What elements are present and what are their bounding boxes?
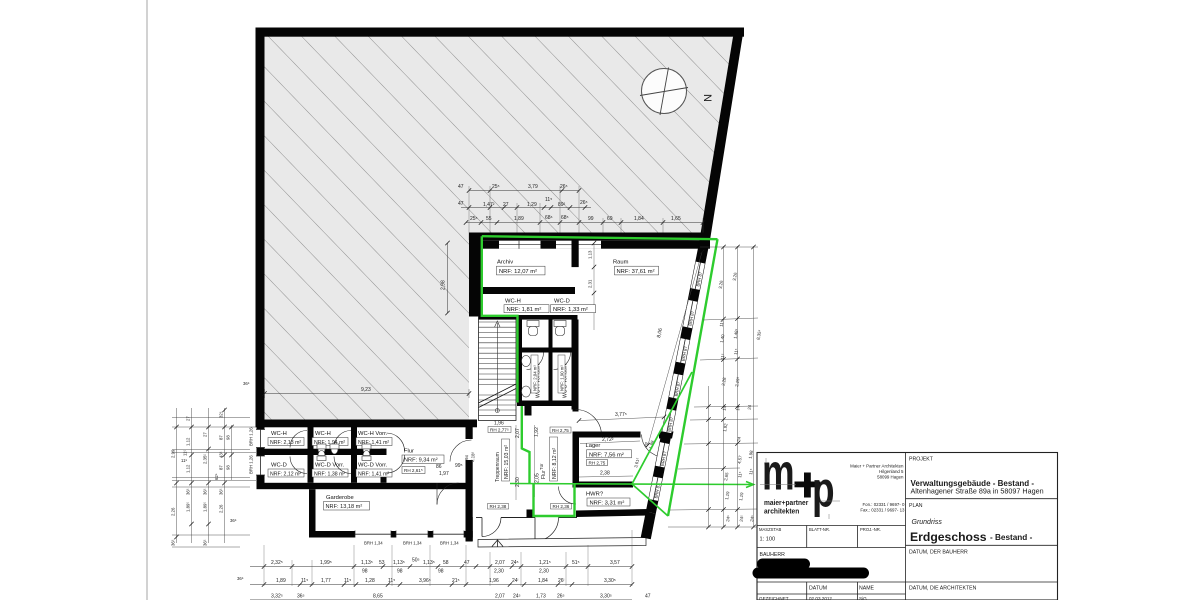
svg-text:36⁵: 36⁵ [203,488,208,495]
svg-text:m: m [762,445,795,501]
svg-text:26ⁱ: 26ⁱ [558,577,565,584]
svg-text:Altenhagener Straße 89a in 580: Altenhagener Straße 89a in 58097 Hagen [911,487,1044,496]
svg-text:BLATT-NR.: BLATT-NR. [809,527,830,532]
svg-text:PROJEKT: PROJEKT [909,457,934,463]
svg-text:Garderobe: Garderobe [326,495,354,501]
svg-text:11⁵: 11⁵ [737,471,743,478]
svg-text:2,65: 2,65 [723,471,729,481]
svg-text:47: 47 [645,594,651,600]
svg-text:36⁵: 36⁵ [219,488,224,495]
svg-text:1,40: 1,40 [719,333,725,343]
svg-text:Treppenraum: Treppenraum [495,452,501,482]
svg-text:24⁵: 24⁵ [749,515,755,523]
svg-text:DATUM, DER BAUHERR: DATUM, DER BAUHERR [909,550,968,556]
svg-text:25⁵: 25⁵ [492,184,500,190]
svg-text:98: 98 [226,435,231,440]
svg-text:1,13⁵: 1,13⁵ [361,560,373,566]
svg-text:HWR?: HWR? [586,492,604,498]
svg-text:2,28: 2,28 [721,376,727,386]
svg-text:98: 98 [226,465,231,470]
svg-text:68⁶: 68⁶ [545,215,553,221]
svg-text:47: 47 [464,560,470,566]
svg-text:36⁵: 36⁵ [230,518,237,523]
svg-text:WC-D: WC-D [554,299,570,305]
svg-text:36⁵: 36⁵ [243,381,250,386]
svg-text:1,47²: 1,47² [483,202,495,208]
svg-text:NRF: 13,18 m²: NRF: 13,18 m² [326,504,363,510]
svg-text:11⁵: 11⁵ [301,578,308,584]
svg-text:02.03.2012: 02.03.2012 [809,596,832,600]
svg-text:24⁵: 24⁵ [511,560,519,566]
svg-text:99: 99 [588,216,594,222]
svg-text:3,79: 3,79 [528,184,538,190]
svg-text:Grundriss: Grundriss [912,519,943,526]
svg-text:1,13⁵: 1,13⁵ [393,560,405,566]
svg-text:1,84: 1,84 [634,216,644,222]
svg-text:8,65: 8,65 [373,594,383,600]
svg-text:36⁵: 36⁵ [186,488,191,495]
svg-text:BRH 1,26: BRH 1,26 [249,427,254,446]
svg-text:RH 2,75: RH 2,75 [552,428,569,433]
svg-text:3,30⁵: 3,30⁵ [600,594,612,600]
svg-text:9,23: 9,23 [361,387,371,393]
svg-text:98: 98 [438,569,444,575]
svg-text:NAME: NAME [859,586,875,592]
svg-text:RH 2,61⁵: RH 2,61⁵ [404,468,423,473]
svg-text:36⁵: 36⁵ [171,539,176,546]
svg-text:87: 87 [219,435,224,440]
svg-text:1,28: 1,28 [365,578,375,584]
svg-text:2,72²: 2,72² [602,437,614,443]
svg-text:55: 55 [486,216,492,222]
svg-text:Fax.: 02331 / 9697- 13: Fax.: 02331 / 9697- 13 [860,508,905,513]
svg-text:2,35⁵: 2,35⁵ [203,454,208,464]
svg-text:GEZEICHNET: GEZEICHNET [759,596,789,600]
svg-text:1,73: 1,73 [536,594,546,600]
svg-text:1,97: 1,97 [439,471,449,477]
svg-text:PROJ.-NR.: PROJ.-NR. [860,527,881,532]
svg-text:1,96: 1,96 [494,421,504,427]
svg-text:24⁵: 24⁵ [513,594,521,600]
svg-text:26⁵: 26⁵ [580,200,588,206]
svg-text:1,92: 1,92 [722,422,728,432]
svg-text:21⁵: 21⁵ [452,578,460,584]
svg-text:architekten: architekten [764,508,799,515]
svg-text:89²: 89² [558,202,566,208]
svg-text:2,07: 2,07 [495,560,505,566]
svg-text:NRF: 1,38 m²: NRF: 1,38 m² [314,471,345,477]
svg-text:50⁵: 50⁵ [412,558,420,564]
svg-text:1,29: 1,29 [527,202,537,208]
svg-text:1,19: 1,19 [724,490,730,500]
svg-text:25⁵: 25⁵ [470,216,478,222]
svg-text:1: 100: 1: 100 [760,537,776,543]
svg-text:1,65: 1,65 [671,216,681,222]
svg-text:58: 58 [443,560,449,566]
svg-text:2,38: 2,38 [600,471,610,477]
svg-text:WC-H: WC-H [271,431,287,437]
svg-text:1,48⁵: 1,48⁵ [733,328,740,339]
svg-text:Archiv: Archiv [497,260,513,266]
svg-text:2,30: 2,30 [494,569,504,575]
svg-text:WC-H Vorr.: WC-H Vorr. [358,431,388,437]
svg-text:27: 27 [186,416,191,421]
svg-text:NRF: 8,12 m²: NRF: 8,12 m² [552,448,558,479]
svg-text:3,77⁵: 3,77⁵ [615,412,627,418]
svg-text:87: 87 [219,465,224,470]
svg-text:maier+partner: maier+partner [764,500,809,507]
svg-text:MASZSTAB: MASZSTAB [759,527,781,532]
svg-text:2,18⁵: 2,18⁵ [470,451,476,462]
svg-text:36⁵: 36⁵ [297,594,305,600]
svg-text:Flur: Flur [404,449,414,455]
svg-text:27: 27 [203,432,208,437]
svg-text:2,98: 2,98 [441,280,447,290]
svg-text:99⁵: 99⁵ [455,463,463,469]
svg-text:WC-H: WC-H [315,431,331,437]
svg-text:1,84: 1,84 [538,578,548,584]
svg-text:3,26: 3,26 [732,271,738,281]
svg-text:NRF: 12,07 m²: NRF: 12,07 m² [499,269,537,275]
svg-text:8,06: 8,06 [656,327,664,338]
svg-text:Lager: Lager [586,443,601,449]
svg-text:3,96⁵: 3,96⁵ [419,578,431,584]
svg-text:RH 2,75: RH 2,75 [589,460,606,465]
svg-text:2,31: 2,31 [588,279,593,288]
svg-text:24: 24 [736,436,742,442]
svg-text:4,57: 4,57 [737,454,743,464]
svg-text:47: 47 [458,201,464,207]
svg-text:24⁵: 24⁵ [725,515,731,523]
svg-text:BRH 1,34: BRH 1,34 [364,541,383,546]
svg-text:11⁵: 11⁵ [733,348,739,355]
svg-text:BRH 1,26: BRH 1,26 [249,455,254,474]
svg-text:WC-D Vorr.: WC-D Vorr. [358,463,388,469]
svg-text:RH 2,77⁵: RH 2,77⁵ [490,427,509,432]
svg-text:69: 69 [607,216,613,222]
svg-text:N: N [701,94,713,102]
svg-text:NRF: 2,04 m²: NRF: 2,04 m² [533,365,538,391]
svg-text:2,05: 2,05 [535,473,541,483]
svg-text:- Bestand -: - Bestand - [990,533,1033,542]
svg-text:11⁵: 11⁵ [183,450,188,456]
svg-text:24⁵: 24⁵ [739,515,745,523]
svg-text:NRF: 3,31 m²: NRF: 3,31 m² [590,501,625,507]
svg-text:2,99: 2,99 [171,449,176,458]
svg-text:1,21⁵: 1,21⁵ [539,560,551,566]
svg-text:3,26: 3,26 [718,279,724,289]
svg-text:NRF: 1,41 m²: NRF: 1,41 m² [358,471,389,477]
svg-text:2,32⁵: 2,32⁵ [271,560,283,566]
svg-text:43⁵: 43⁵ [219,451,224,458]
svg-text:SiG: SiG [859,596,867,600]
svg-text:11⁵: 11⁵ [388,578,395,584]
svg-text:Erdgeschoss: Erdgeschoss [910,530,987,544]
svg-text:Flur: Flur [541,470,547,479]
svg-text:2,07: 2,07 [495,594,505,600]
svg-text:32⁵: 32⁵ [219,411,224,418]
svg-text:98: 98 [397,569,403,575]
svg-text:Hilgenland 5: Hilgenland 5 [879,469,904,474]
svg-text:NRF: 1,33 m²: NRF: 1,33 m² [553,307,588,313]
svg-text:3,32⁵: 3,32⁵ [271,594,283,600]
svg-text:53: 53 [379,560,385,566]
svg-text:24ⁱ: 24ⁱ [512,577,519,584]
svg-text:11⁵: 11⁵ [181,458,187,463]
svg-text:58099 Hagen: 58099 Hagen [877,475,904,480]
svg-text:NRF: 1,81 m²: NRF: 1,81 m² [507,307,542,313]
svg-text:1,19: 1,19 [738,491,744,501]
svg-text:1,99⁵: 1,99⁵ [320,560,332,566]
svg-text:36⁵: 36⁵ [203,539,208,546]
svg-text:NRF: 9,34 m²: NRF: 9,34 m² [404,458,438,464]
svg-text:NRF: 2,12 m²: NRF: 2,12 m² [270,471,301,477]
svg-text:1,89⁵: 1,89⁵ [203,502,208,512]
svg-text:DATUM, DIE ARCHITEKTEN: DATUM, DIE ARCHITEKTEN [909,586,977,592]
svg-text:2,30: 2,30 [539,569,549,575]
svg-text:98: 98 [362,569,368,575]
svg-text:1,89: 1,89 [276,578,286,584]
svg-text:1,77: 1,77 [321,578,331,584]
svg-text:2,19⁵: 2,19⁵ [734,376,741,387]
svg-text:1,98: 1,98 [748,449,754,459]
svg-text:1,89⁵: 1,89⁵ [186,502,191,512]
svg-text:2,26: 2,26 [171,507,176,516]
svg-text:NRF: 7,56 m²: NRF: 7,56 m² [589,452,624,458]
svg-text:NRF: 1,90 m²: NRF: 1,90 m² [560,365,565,391]
svg-text:1,13⁵: 1,13⁵ [423,560,435,566]
svg-text:BAUHERR: BAUHERR [760,552,786,558]
svg-text:3,30⁵: 3,30⁵ [604,578,616,584]
svg-text:Tür: Tür [539,463,544,470]
svg-text:26⁵: 26⁵ [560,184,568,190]
svg-text:3,61²: 3,61² [633,457,641,468]
svg-text:WC-D Vorr.: WC-D Vorr. [315,463,345,469]
svg-text:11⁵: 11⁵ [748,468,754,475]
svg-text:1,13: 1,13 [588,250,593,259]
svg-text:27: 27 [503,202,509,208]
svg-text:RH 2,38: RH 2,38 [490,504,507,509]
svg-text:NRF: 2,13 m²: NRF: 2,13 m² [270,440,301,446]
svg-text:36⁵: 36⁵ [237,576,244,581]
svg-text:24: 24 [747,404,753,410]
svg-text:68⁵: 68⁵ [561,215,569,221]
svg-text:BRH 1,34: BRH 1,34 [403,541,422,546]
svg-text:11⁵: 11⁵ [344,578,351,584]
svg-text:NRF: 15,03 m²: NRF: 15,03 m² [504,445,510,479]
svg-text:47: 47 [458,184,464,190]
svg-text:WC-D: WC-D [271,463,287,469]
svg-text:Raum: Raum [613,260,629,266]
svg-text:94: 94 [464,454,469,460]
svg-text:RH 2,36: RH 2,36 [553,504,570,509]
svg-text:1,12: 1,12 [186,437,191,446]
svg-text:26⁵: 26⁵ [557,594,565,600]
svg-text:3,57: 3,57 [610,560,620,566]
svg-text:1,12: 1,12 [186,464,191,473]
svg-text:2,26: 2,26 [219,504,224,513]
svg-text:BRH 1,34: BRH 1,34 [440,541,459,546]
svg-text:1,89: 1,89 [514,216,524,222]
svg-text:62⁵: 62⁵ [214,473,219,480]
svg-text:PLAN: PLAN [909,503,923,509]
svg-text:8,35⁵: 8,35⁵ [756,329,763,340]
svg-text:51⁵: 51⁵ [572,560,580,566]
svg-text:11⁵: 11⁵ [545,197,552,203]
svg-text:DATUM: DATUM [809,586,827,592]
svg-text:Maier + Partner Architekten: Maier + Partner Architekten [850,464,904,469]
svg-text:Fon.: 02331 / 9697- 0: Fon.: 02331 / 9697- 0 [863,502,906,507]
svg-text:WC-H: WC-H [505,299,521,305]
svg-text:NRF: 37,61 m²: NRF: 37,61 m² [617,269,655,275]
svg-text:1,96: 1,96 [489,578,499,584]
svg-text:p: p [812,462,835,518]
svg-text:86: 86 [436,464,442,470]
